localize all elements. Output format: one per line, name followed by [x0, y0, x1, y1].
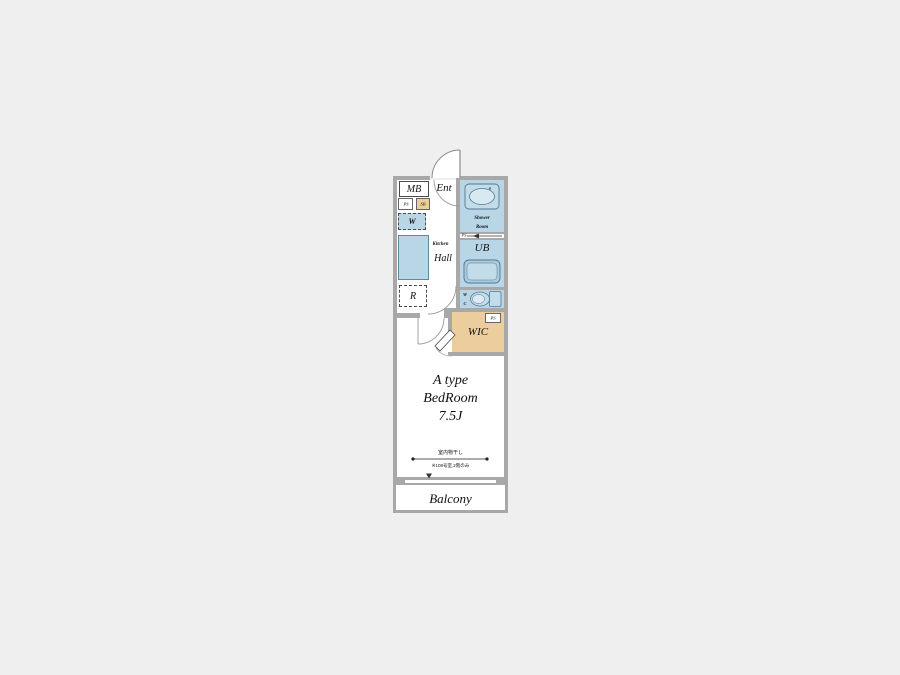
indoor-drying-note-text2: ※108号室,2階のみ	[432, 463, 470, 468]
floor-plan: MB PS SB W R PS Ent Kitchen Hall Shower …	[393, 176, 508, 513]
pipe-space-box: PS	[398, 198, 413, 210]
unit-bath-label: UB	[460, 241, 504, 256]
washer-space: W	[398, 213, 426, 230]
wall	[460, 176, 508, 180]
entrance-door-swing-area	[432, 150, 460, 178]
window-opening	[405, 480, 496, 483]
toilet-label: W C	[459, 290, 471, 308]
wall	[444, 308, 452, 318]
pipe-space-label: PS	[403, 202, 408, 207]
entrance-door-arc-outer	[432, 150, 460, 178]
refrigerator-space: R	[399, 285, 427, 307]
wic-label: WIC	[452, 323, 504, 341]
toilet-label-line1: W	[463, 292, 467, 297]
page-background: MB PS SB W R PS Ent Kitchen Hall Shower …	[0, 0, 900, 675]
indoor-drying-note-line1: 室内物干し	[397, 448, 504, 456]
bedroom-title-line2: BedRoom	[423, 392, 477, 406]
ps-strip-label: PS	[458, 231, 470, 240]
bedroom-title-line3: 7.5J	[439, 410, 463, 424]
kitchen-label-text: Kitchen	[432, 241, 448, 246]
wall	[448, 352, 504, 356]
kitchen-counter	[398, 235, 429, 280]
toilet-label-line2: C	[463, 301, 466, 306]
balcony-label: Balcony	[396, 487, 505, 509]
wall	[393, 176, 397, 485]
ps-strip-label-text: PS	[462, 233, 467, 237]
wic-pipe-space-label: PS	[491, 316, 496, 321]
kitchen-label: Kitchen	[426, 239, 454, 248]
entrance-label: Ent	[430, 181, 458, 195]
wic-pipe-space-box: PS	[485, 313, 501, 323]
shoe-box-label: SB	[421, 202, 426, 207]
shower-room-label-line2: Room	[476, 224, 488, 229]
meter-box: MB	[399, 181, 429, 197]
bedroom-title-line1: A type	[433, 374, 468, 388]
hall-label: Hall	[430, 252, 456, 266]
indoor-drying-note-text1: 室内物干し	[438, 450, 463, 455]
shoe-box: SB	[416, 198, 430, 210]
wall	[504, 176, 508, 485]
wall	[397, 313, 420, 318]
shower-room-label-line1: Shower	[474, 215, 489, 220]
shower-room-label: Shower Room	[460, 213, 504, 231]
balcony-wall	[393, 510, 508, 513]
wall	[393, 176, 430, 180]
wall	[448, 308, 504, 312]
indoor-drying-note-line2: ※108号室,2階のみ	[397, 461, 504, 469]
balcony-wall	[505, 485, 508, 513]
bedroom-title: A type BedRoom 7.5J	[397, 372, 504, 426]
